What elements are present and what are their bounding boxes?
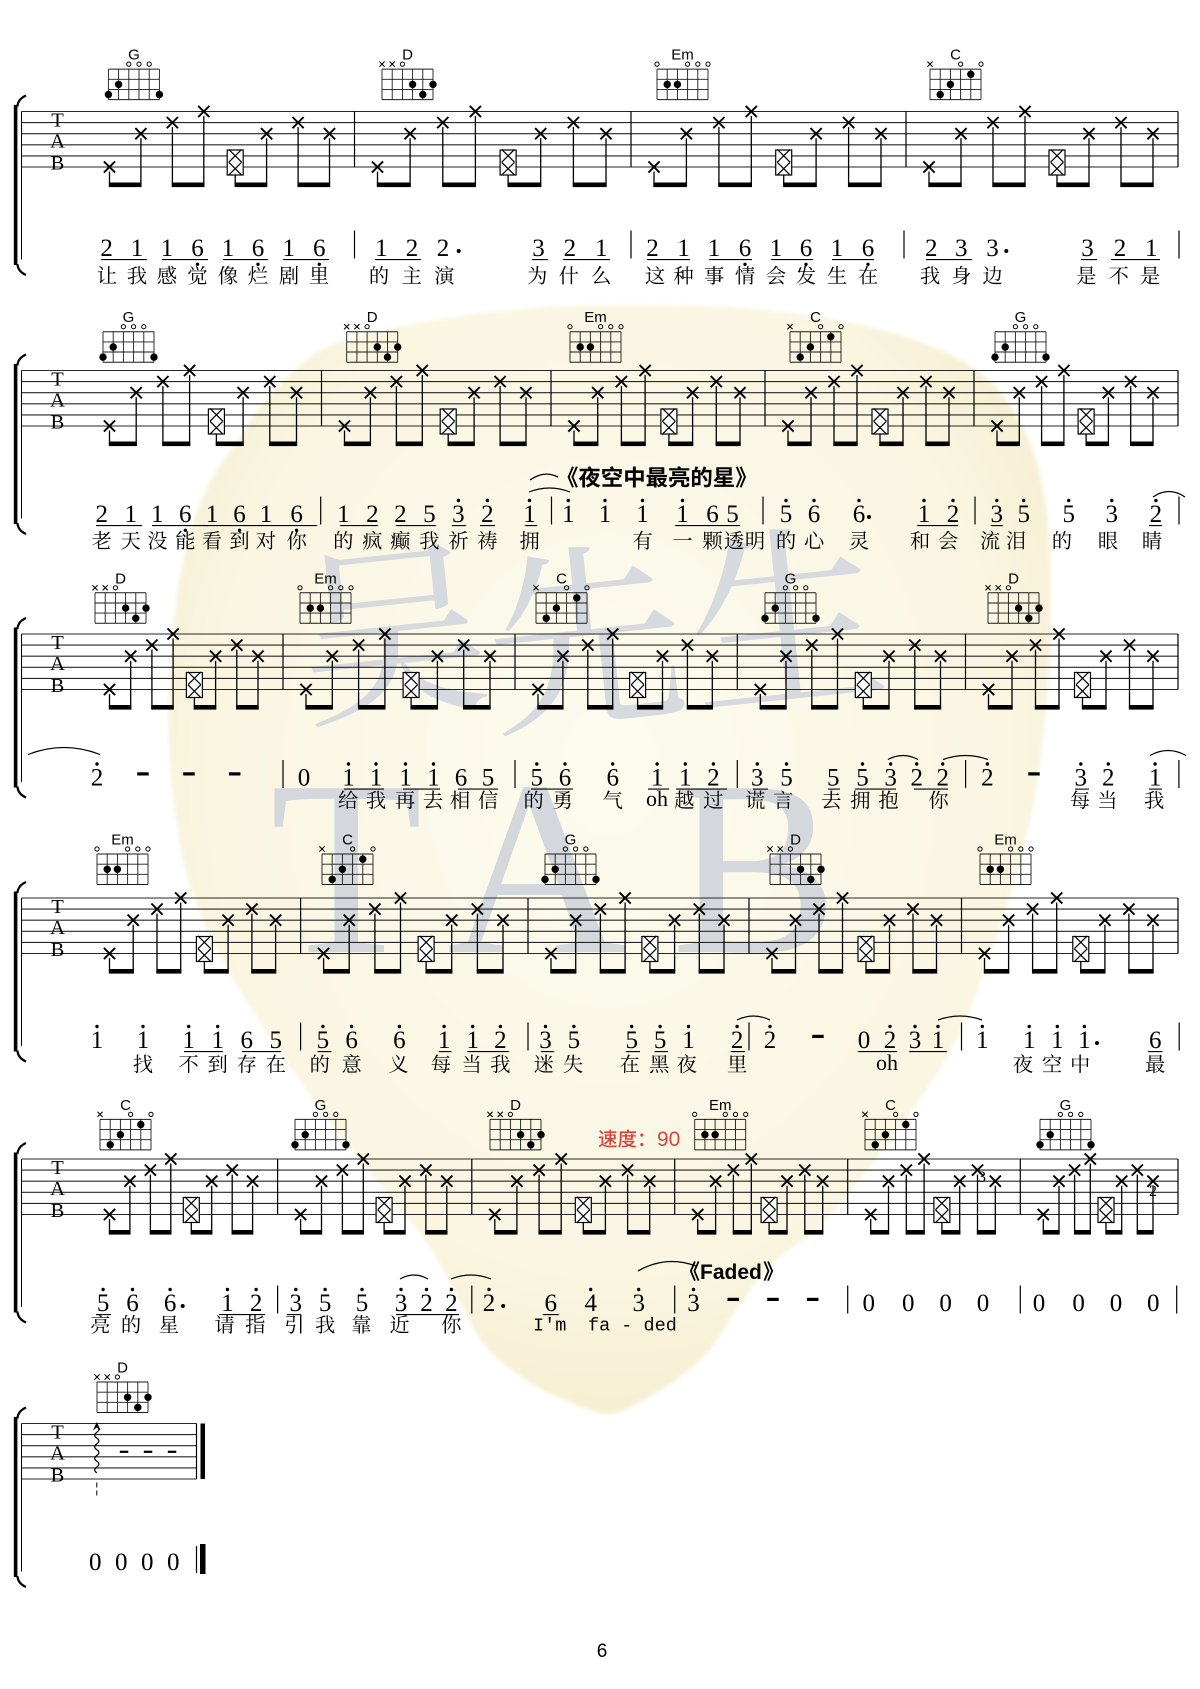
svg-text:5: 5 [726, 501, 739, 528]
svg-text:6: 6 [393, 1027, 406, 1054]
svg-text:5: 5 [856, 765, 869, 792]
svg-text:5: 5 [568, 1027, 581, 1054]
svg-text:T: T [51, 109, 64, 131]
svg-text:A: A [50, 390, 65, 412]
svg-text:1: 1 [976, 1027, 989, 1054]
svg-text:A: A [50, 653, 65, 675]
svg-text:C: C [885, 1097, 896, 1114]
svg-text:G: G [1015, 309, 1027, 326]
svg-text:5: 5 [356, 1290, 369, 1317]
svg-text:A: A [50, 1443, 65, 1465]
svg-text:2: 2 [437, 235, 450, 262]
svg-text:0: 0 [1110, 1290, 1123, 1317]
svg-text:5: 5 [531, 765, 544, 792]
svg-text:I'm: I'm [533, 1316, 566, 1337]
svg-text:G: G [123, 309, 135, 326]
svg-text:5: 5 [1062, 501, 1075, 528]
svg-text:B: B [51, 411, 65, 433]
svg-text:1: 1 [676, 501, 689, 528]
svg-text:1: 1 [708, 235, 721, 262]
svg-text:A: A [50, 917, 65, 939]
svg-text:0: 0 [167, 1549, 180, 1576]
svg-text:6: 6 [559, 765, 572, 792]
svg-text:Em: Em [314, 570, 337, 587]
svg-text:6: 6 [800, 235, 813, 262]
svg-text:5: 5 [780, 501, 793, 528]
svg-text:3: 3 [632, 1290, 645, 1317]
svg-text:6: 6 [853, 501, 866, 528]
svg-text:0: 0 [1072, 1290, 1085, 1317]
svg-text:2: 2 [947, 501, 960, 528]
svg-text:2: 2 [250, 1290, 263, 1317]
svg-text:oh: oh [876, 1050, 898, 1075]
svg-text:C: C [810, 309, 821, 326]
svg-text:2: 2 [925, 235, 938, 262]
svg-text:2: 2 [406, 235, 419, 262]
svg-text:D: D [117, 1360, 128, 1377]
svg-text:0: 0 [862, 1290, 875, 1317]
svg-text:D: D [510, 1097, 521, 1114]
svg-text:5: 5 [827, 765, 840, 792]
svg-text:C: C [342, 832, 353, 849]
svg-text:1: 1 [182, 1027, 195, 1054]
svg-text:3: 3 [687, 1290, 700, 1317]
svg-text:3: 3 [884, 765, 897, 792]
svg-text:6: 6 [706, 501, 719, 528]
svg-text:5: 5 [423, 501, 436, 528]
svg-text:1: 1 [337, 501, 350, 528]
svg-text:0: 0 [902, 1290, 915, 1317]
svg-text:1: 1 [679, 765, 692, 792]
svg-text:6: 6 [808, 501, 821, 528]
svg-text:1: 1 [599, 501, 612, 528]
svg-text:G: G [128, 47, 140, 64]
svg-text:5: 5 [780, 765, 793, 792]
svg-text:G: G [785, 570, 797, 587]
svg-text:T: T [51, 896, 64, 918]
svg-text:1: 1 [151, 501, 164, 528]
svg-text:1: 1 [1023, 1027, 1036, 1054]
svg-text:3: 3 [1106, 501, 1119, 528]
svg-text:3: 3 [290, 1290, 303, 1317]
svg-text:2: 2 [910, 765, 923, 792]
svg-text:6: 6 [606, 765, 619, 792]
svg-text:1: 1 [523, 501, 536, 528]
svg-text:Em: Em [111, 832, 134, 849]
svg-text:1: 1 [682, 1027, 695, 1054]
svg-text:6: 6 [345, 1027, 358, 1054]
svg-text:Em: Em [584, 309, 607, 326]
svg-text:Em: Em [671, 47, 694, 64]
svg-text:2: 2 [936, 765, 949, 792]
svg-text:6: 6 [241, 1027, 254, 1054]
svg-text:6: 6 [1149, 1027, 1162, 1054]
svg-text:4: 4 [584, 1290, 597, 1317]
svg-text:2: 2 [394, 501, 407, 528]
svg-text:1: 1 [91, 1027, 104, 1054]
svg-text:Em: Em [709, 1097, 732, 1114]
svg-text:C: C [120, 1097, 131, 1114]
svg-text:0: 0 [1033, 1290, 1046, 1317]
svg-text:5: 5 [97, 1290, 110, 1317]
svg-text:3: 3 [978, 1169, 986, 1186]
svg-text:3: 3 [909, 1027, 922, 1054]
svg-text:1: 1 [677, 235, 690, 262]
svg-text:3: 3 [539, 1027, 552, 1054]
svg-text:6: 6 [290, 501, 303, 528]
svg-text:1: 1 [831, 235, 844, 262]
svg-text:2: 2 [95, 501, 108, 528]
svg-text:C: C [950, 47, 961, 64]
svg-text:0: 0 [939, 1290, 952, 1317]
svg-text:T: T [51, 1157, 64, 1179]
svg-text:6: 6 [233, 501, 246, 528]
svg-text:T: T [51, 1421, 64, 1443]
svg-text:0: 0 [1147, 1290, 1160, 1317]
svg-text:B: B [51, 1200, 65, 1222]
svg-text:0: 0 [977, 1290, 990, 1317]
svg-text:5: 5 [654, 1027, 667, 1054]
svg-text:2: 2 [481, 501, 494, 528]
svg-text:1: 1 [466, 1027, 479, 1054]
svg-text:1: 1 [770, 235, 783, 262]
svg-text:1: 1 [1149, 765, 1162, 792]
svg-text:D: D [790, 832, 801, 849]
svg-text:D: D [402, 47, 413, 64]
svg-text:2: 2 [1150, 501, 1163, 528]
svg-text:6: 6 [252, 235, 265, 262]
svg-text:1: 1 [595, 235, 608, 262]
svg-text:3: 3 [532, 235, 545, 262]
svg-text:2: 2 [366, 501, 379, 528]
svg-text:2: 2 [646, 235, 659, 262]
svg-text:90: 90 [657, 1128, 680, 1151]
svg-text:1: 1 [1145, 235, 1158, 262]
svg-text:0: 0 [858, 1027, 871, 1054]
svg-text:1: 1 [1078, 1027, 1091, 1054]
svg-text:G: G [315, 1097, 327, 1114]
svg-text:1: 1 [222, 235, 235, 262]
svg-text:1: 1 [399, 765, 412, 792]
svg-text:3: 3 [1075, 765, 1088, 792]
svg-text:1: 1 [137, 1027, 150, 1054]
svg-text:0: 0 [298, 765, 311, 792]
svg-text:G: G [1060, 1097, 1072, 1114]
svg-text:3: 3 [751, 765, 764, 792]
svg-text:0: 0 [141, 1549, 154, 1576]
svg-text:1: 1 [211, 1027, 224, 1054]
svg-text:oh: oh [646, 786, 668, 811]
svg-text:2: 2 [420, 1290, 433, 1317]
svg-text:1: 1 [427, 765, 440, 792]
svg-text:2: 2 [731, 1027, 744, 1054]
svg-text:1: 1 [206, 501, 219, 528]
svg-text:2: 2 [1114, 235, 1127, 262]
svg-text:6: 6 [455, 765, 468, 792]
svg-text:D: D [367, 309, 378, 326]
svg-text:6: 6 [164, 1290, 177, 1317]
svg-text:B: B [51, 675, 65, 697]
svg-text:5: 5 [319, 1290, 332, 1317]
svg-text:B: B [51, 1464, 65, 1486]
svg-text:2: 2 [100, 235, 113, 262]
svg-text:2: 2 [981, 765, 994, 792]
svg-text:1: 1 [131, 235, 144, 262]
svg-text:2: 2 [1149, 1183, 1157, 1200]
svg-text:0: 0 [89, 1549, 102, 1576]
svg-text:6: 6 [544, 1290, 557, 1317]
svg-text:Em: Em [994, 832, 1017, 849]
svg-text:5: 5 [270, 1027, 283, 1054]
svg-text:fa - ded: fa - ded [588, 1316, 677, 1337]
svg-text:2: 2 [1102, 765, 1115, 792]
svg-text:1: 1 [562, 501, 575, 528]
svg-text:3: 3 [1081, 235, 1094, 262]
svg-text:1: 1 [260, 501, 273, 528]
svg-text:2: 2 [707, 765, 720, 792]
svg-text:1: 1 [283, 235, 296, 262]
svg-text:T: T [51, 368, 64, 390]
svg-text:A: A [50, 1178, 65, 1200]
svg-text:6: 6 [313, 235, 326, 262]
svg-text:6: 6 [126, 1290, 139, 1317]
svg-text:B: B [51, 939, 65, 961]
svg-text:5: 5 [1017, 501, 1030, 528]
svg-text:3: 3 [395, 1290, 408, 1317]
svg-text:1: 1 [932, 1027, 945, 1054]
svg-text:G: G [565, 832, 577, 849]
svg-text:6: 6 [191, 235, 204, 262]
svg-text:1: 1 [221, 1290, 234, 1317]
svg-text:2: 2 [445, 1290, 458, 1317]
svg-text:2: 2 [483, 1290, 496, 1317]
svg-text:1: 1 [375, 235, 388, 262]
svg-text:3: 3 [991, 501, 1004, 528]
svg-text:6: 6 [597, 1641, 608, 1662]
svg-text:1: 1 [1051, 1027, 1064, 1054]
svg-text:D: D [1008, 570, 1019, 587]
svg-text:5: 5 [482, 765, 495, 792]
svg-text:A: A [50, 131, 65, 153]
svg-text:5: 5 [317, 1027, 330, 1054]
svg-text:C: C [556, 570, 567, 587]
svg-text:1: 1 [438, 1027, 451, 1054]
svg-text:1: 1 [918, 501, 931, 528]
svg-text:6: 6 [862, 235, 875, 262]
svg-text:1: 1 [370, 765, 383, 792]
svg-text:3: 3 [986, 235, 999, 262]
svg-text:1: 1 [124, 501, 137, 528]
svg-text:3: 3 [452, 501, 465, 528]
svg-text:6: 6 [179, 501, 192, 528]
svg-text:5: 5 [625, 1027, 638, 1054]
svg-text:D: D [115, 570, 126, 587]
svg-text:T: T [51, 632, 64, 654]
svg-text:1: 1 [161, 235, 174, 262]
svg-text:2: 2 [564, 235, 577, 262]
svg-text:1: 1 [342, 765, 355, 792]
svg-text:0: 0 [115, 1549, 128, 1576]
svg-text:1: 1 [636, 501, 649, 528]
svg-text:6: 6 [739, 235, 752, 262]
svg-text:2: 2 [764, 1027, 777, 1054]
svg-text:2: 2 [91, 765, 104, 792]
svg-text:2: 2 [494, 1027, 507, 1054]
svg-text:B: B [51, 152, 65, 174]
svg-text:3: 3 [955, 235, 968, 262]
svg-text:Faded: Faded [700, 1261, 762, 1284]
